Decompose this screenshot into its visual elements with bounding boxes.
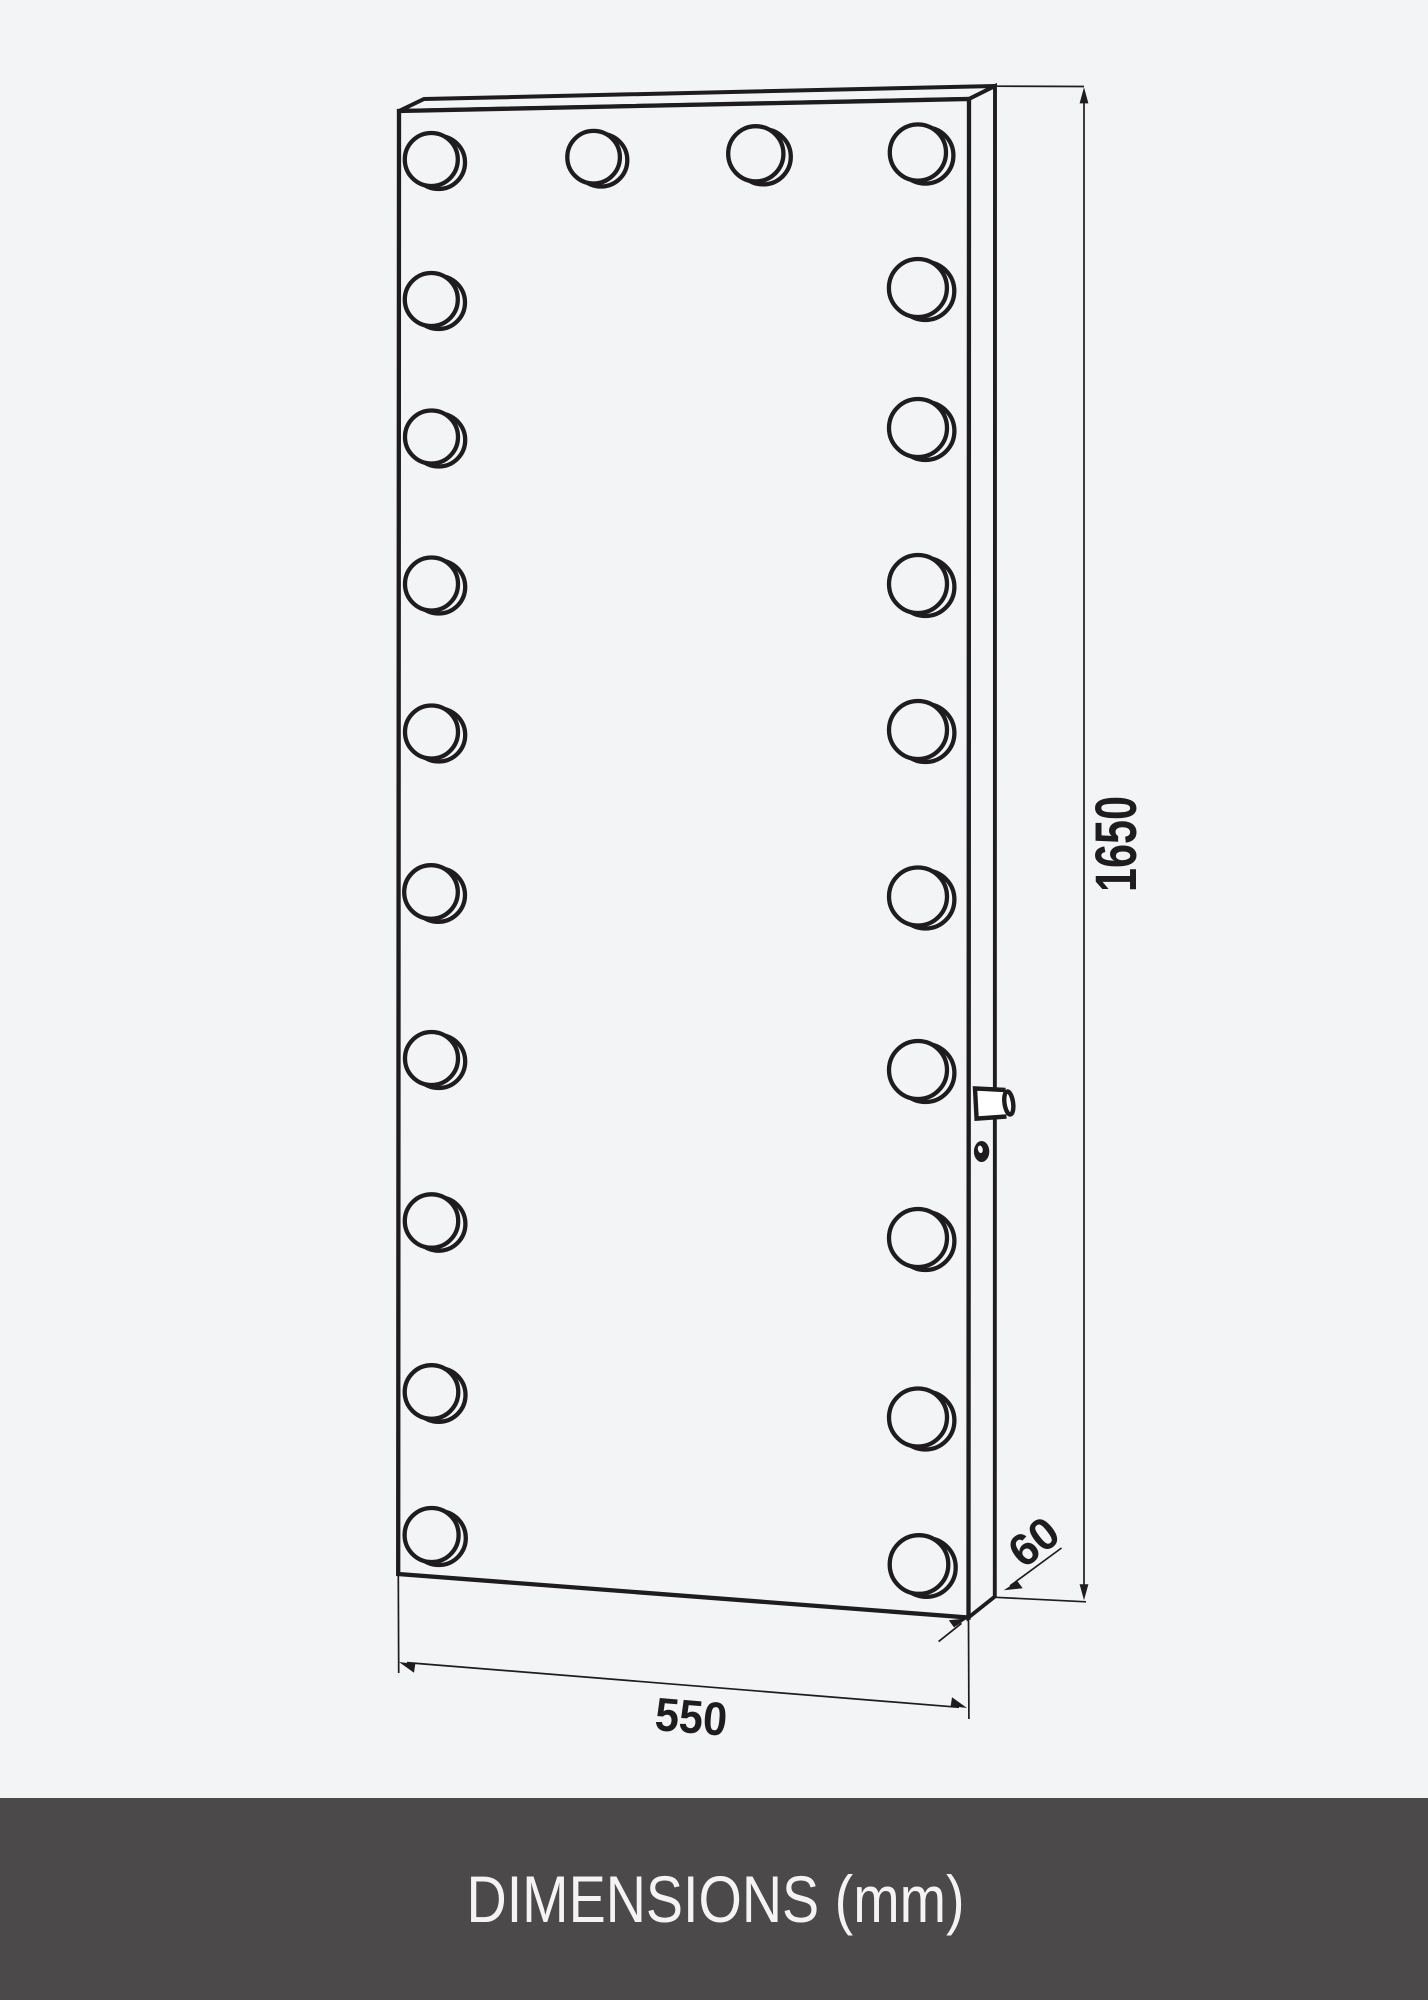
svg-text:DIMENSIONS (mm): DIMENSIONS (mm) [467, 1862, 965, 1936]
svg-text:550: 550 [653, 1687, 729, 1746]
svg-text:1650: 1650 [1084, 796, 1149, 892]
